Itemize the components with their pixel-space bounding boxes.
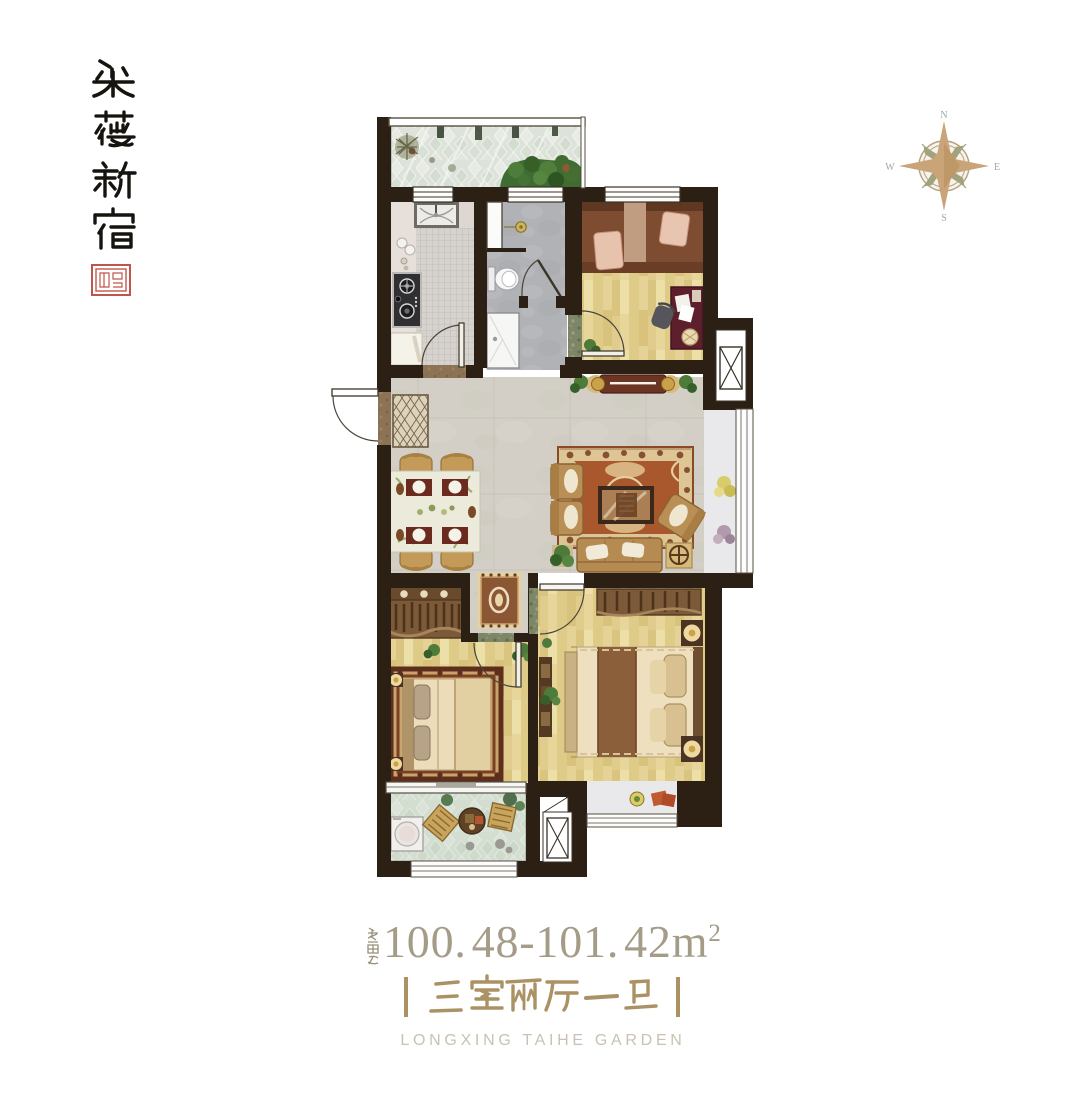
svg-text:100.48-101.42m2: 100.48-101.42m2 — [383, 916, 722, 967]
svg-text:LONGXING TAIHE GARDEN: LONGXING TAIHE GARDEN — [400, 1032, 685, 1049]
svg-text:E: E — [994, 162, 1000, 173]
svg-text:W: W — [885, 162, 895, 173]
svg-text:N: N — [940, 110, 947, 121]
svg-text:S: S — [941, 213, 947, 224]
